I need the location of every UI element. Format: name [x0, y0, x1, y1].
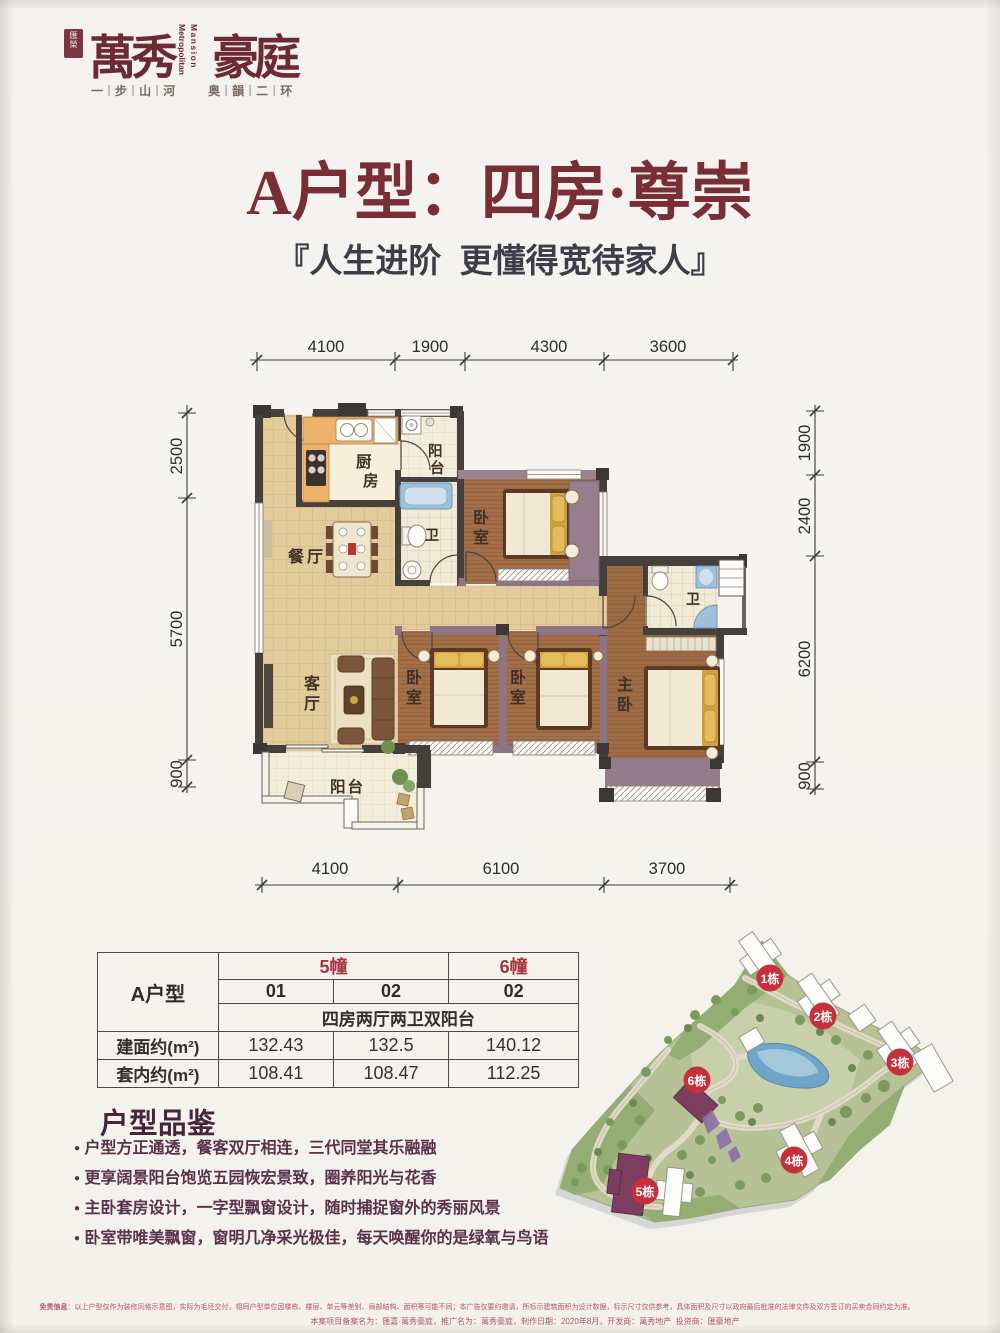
svg-text:室: 室 — [510, 688, 526, 707]
svg-text:900: 900 — [796, 762, 814, 790]
svg-text:卧: 卧 — [510, 669, 526, 687]
svg-text:6200: 6200 — [796, 641, 814, 678]
svg-text:卧: 卧 — [473, 509, 489, 527]
svg-text:厅: 厅 — [304, 695, 320, 713]
svg-text:室: 室 — [406, 688, 422, 707]
svg-text:主: 主 — [617, 675, 633, 694]
svg-text:卧: 卧 — [406, 669, 422, 687]
svg-text:5栋: 5栋 — [636, 1184, 655, 1199]
svg-text:阳台: 阳台 — [330, 777, 365, 796]
svg-text:台: 台 — [430, 459, 445, 477]
svg-text:1900: 1900 — [796, 425, 814, 462]
svg-text:阳: 阳 — [428, 443, 443, 460]
svg-text:室: 室 — [473, 528, 489, 547]
svg-text:卫: 卫 — [425, 527, 439, 543]
svg-text:4栋: 4栋 — [785, 1153, 804, 1168]
svg-text:900: 900 — [168, 760, 186, 788]
svg-text:2栋: 2栋 — [814, 1009, 833, 1024]
svg-text:3600: 3600 — [650, 338, 687, 356]
svg-text:2500: 2500 — [168, 438, 186, 475]
svg-text:房: 房 — [363, 471, 379, 490]
svg-text:厨: 厨 — [356, 453, 372, 471]
svg-text:卫: 卫 — [686, 591, 700, 607]
svg-text:4100: 4100 — [308, 338, 345, 356]
svg-text:餐厅: 餐厅 — [287, 547, 326, 566]
svg-text:6100: 6100 — [483, 860, 520, 878]
svg-text:卧: 卧 — [617, 696, 633, 714]
svg-text:1900: 1900 — [412, 338, 449, 356]
svg-text:6栋: 6栋 — [688, 1073, 707, 1088]
svg-text:3700: 3700 — [649, 860, 686, 878]
svg-text:2400: 2400 — [796, 498, 814, 535]
svg-text:5700: 5700 — [168, 611, 186, 648]
svg-text:1栋: 1栋 — [761, 971, 780, 986]
svg-text:4300: 4300 — [531, 338, 568, 356]
svg-text:客: 客 — [304, 674, 321, 693]
svg-text:3栋: 3栋 — [891, 1055, 910, 1070]
svg-text:4100: 4100 — [312, 860, 349, 878]
